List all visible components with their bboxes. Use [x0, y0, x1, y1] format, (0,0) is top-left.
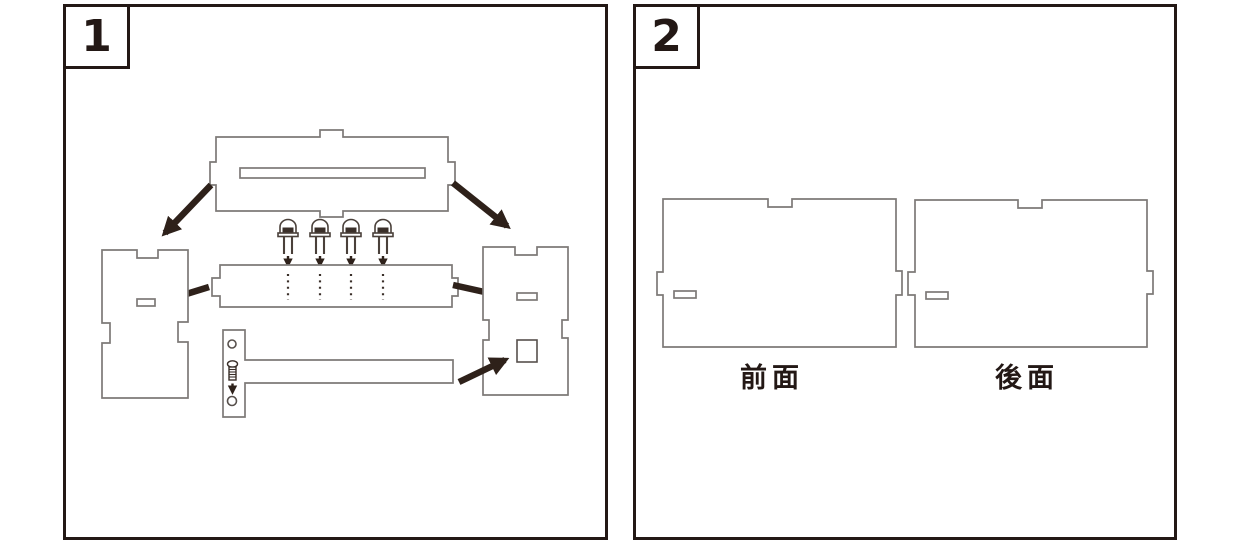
step-2-panels-diagram	[633, 4, 1177, 540]
led-icon	[341, 220, 361, 254]
front-plate-label: 前面	[702, 356, 842, 395]
led-icon	[310, 220, 330, 254]
led-icon	[278, 220, 298, 254]
back-plate-part	[908, 200, 1153, 347]
step-1-number-box: 1	[66, 7, 130, 69]
arrow-top-to-right-icon	[453, 183, 507, 226]
step-1-assembly-diagram	[63, 4, 608, 540]
middle-plate-part	[212, 265, 458, 307]
step-1-panel: 1	[63, 4, 608, 540]
back-plate-slot	[926, 292, 948, 299]
left-side-panel-part	[102, 250, 188, 398]
top-plate-slot	[240, 168, 425, 178]
step-1-number: 1	[81, 11, 112, 62]
screw-hole-bottom	[228, 397, 237, 406]
step-2-panel: 2 前面 後面	[633, 4, 1177, 540]
front-plate-slot	[674, 291, 696, 298]
step-2-number: 2	[651, 11, 682, 62]
right-side-panel-part	[483, 247, 568, 395]
step-2-number-box: 2	[636, 7, 700, 69]
t-base-part	[223, 330, 453, 417]
left-panel-slot	[137, 299, 155, 306]
led-icon	[373, 220, 393, 254]
instruction-sheet: 1	[0, 0, 1242, 546]
right-panel-slot	[517, 293, 537, 300]
screw-icon	[228, 361, 238, 380]
top-plate-part	[210, 130, 455, 217]
led-row	[278, 220, 393, 265]
back-plate-label: 後面	[957, 356, 1097, 395]
right-panel-square-hole	[517, 340, 537, 362]
front-plate-part	[657, 199, 902, 347]
arrow-top-to-left-icon	[165, 185, 211, 233]
screw-hole-top	[228, 340, 236, 348]
